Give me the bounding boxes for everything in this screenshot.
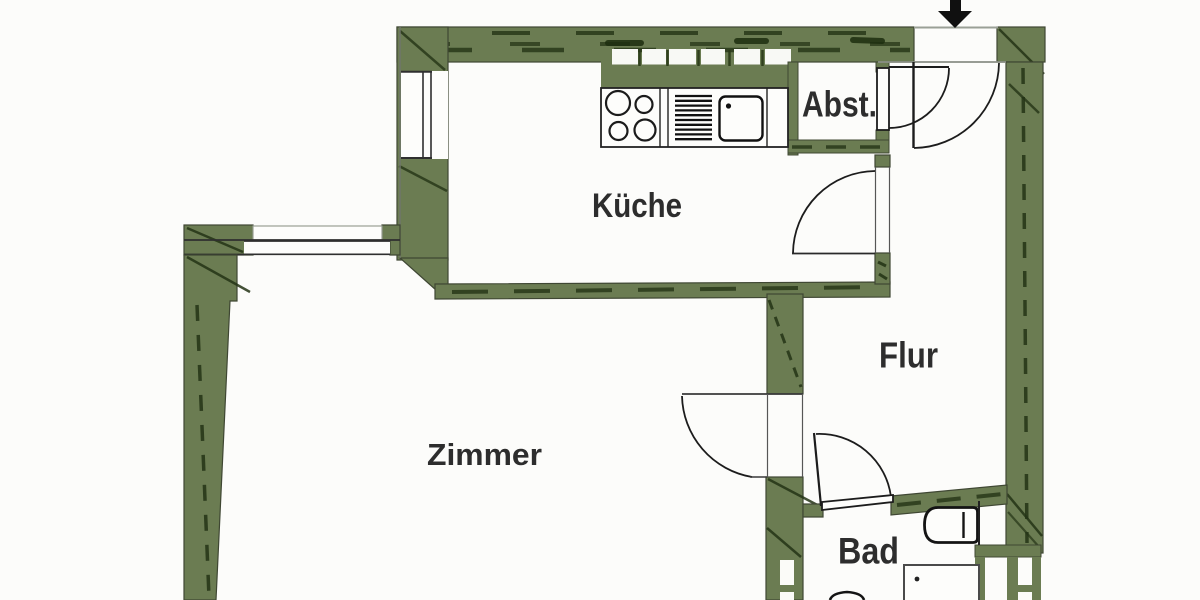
svg-text:Abst.: Abst. <box>802 84 877 125</box>
svg-text:Bad: Bad <box>838 531 899 572</box>
svg-text:Zimmer: Zimmer <box>427 437 542 472</box>
svg-text:Küche: Küche <box>592 187 682 225</box>
svg-text:Flur: Flur <box>879 335 938 376</box>
